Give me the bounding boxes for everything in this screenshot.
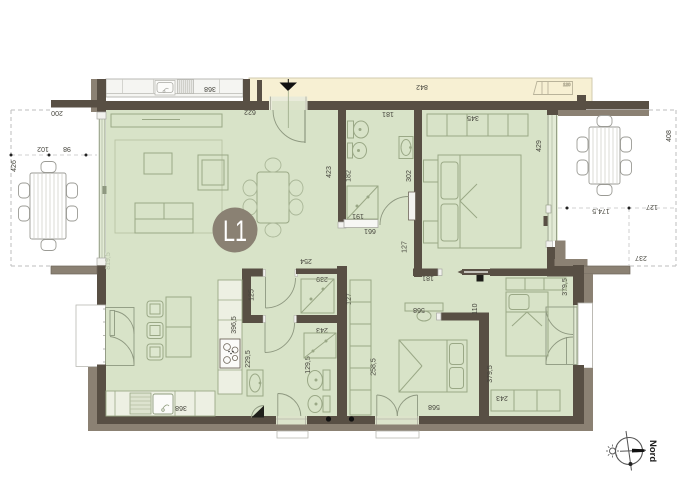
svg-text:182: 182 [346,170,353,182]
svg-text:568: 568 [413,306,425,313]
svg-text:345: 345 [467,114,479,121]
svg-text:127: 127 [402,241,409,253]
svg-text:110: 110 [472,303,479,314]
svg-text:229,5: 229,5 [245,350,252,368]
svg-text:379,5: 379,5 [487,365,494,383]
svg-text:120: 120 [563,82,571,87]
svg-text:181: 181 [422,274,434,281]
svg-text:254: 254 [300,257,312,264]
svg-text:125: 125 [249,289,256,301]
svg-text:568: 568 [428,403,440,410]
svg-text:98: 98 [63,145,71,152]
svg-text:258,5: 258,5 [371,358,378,376]
svg-text:127: 127 [646,203,658,210]
svg-text:200: 200 [51,109,63,116]
svg-text:426: 426 [11,160,18,172]
svg-text:181: 181 [382,110,394,117]
svg-text:423: 423 [326,166,333,178]
svg-text:L1: L1 [223,215,247,248]
svg-text:102: 102 [37,145,49,152]
svg-text:191: 191 [352,212,364,219]
svg-text:429: 429 [536,140,543,152]
svg-text:661: 661 [364,227,376,234]
svg-text:129,5: 129,5 [305,356,312,374]
svg-text:842: 842 [416,83,428,90]
svg-text:Nord: Nord [647,440,658,462]
svg-text:396,5: 396,5 [231,316,238,334]
svg-text:237: 237 [635,254,647,261]
svg-text:368: 368 [175,404,187,411]
svg-text:174,5: 174,5 [592,207,610,214]
svg-text:243: 243 [316,326,328,333]
svg-text:302: 302 [406,170,413,182]
svg-text:243: 243 [496,394,508,401]
svg-text:622: 622 [244,108,256,115]
svg-text:819,5: 819,5 [105,252,112,270]
svg-text:368: 368 [204,85,216,92]
svg-text:408: 408 [666,130,673,142]
